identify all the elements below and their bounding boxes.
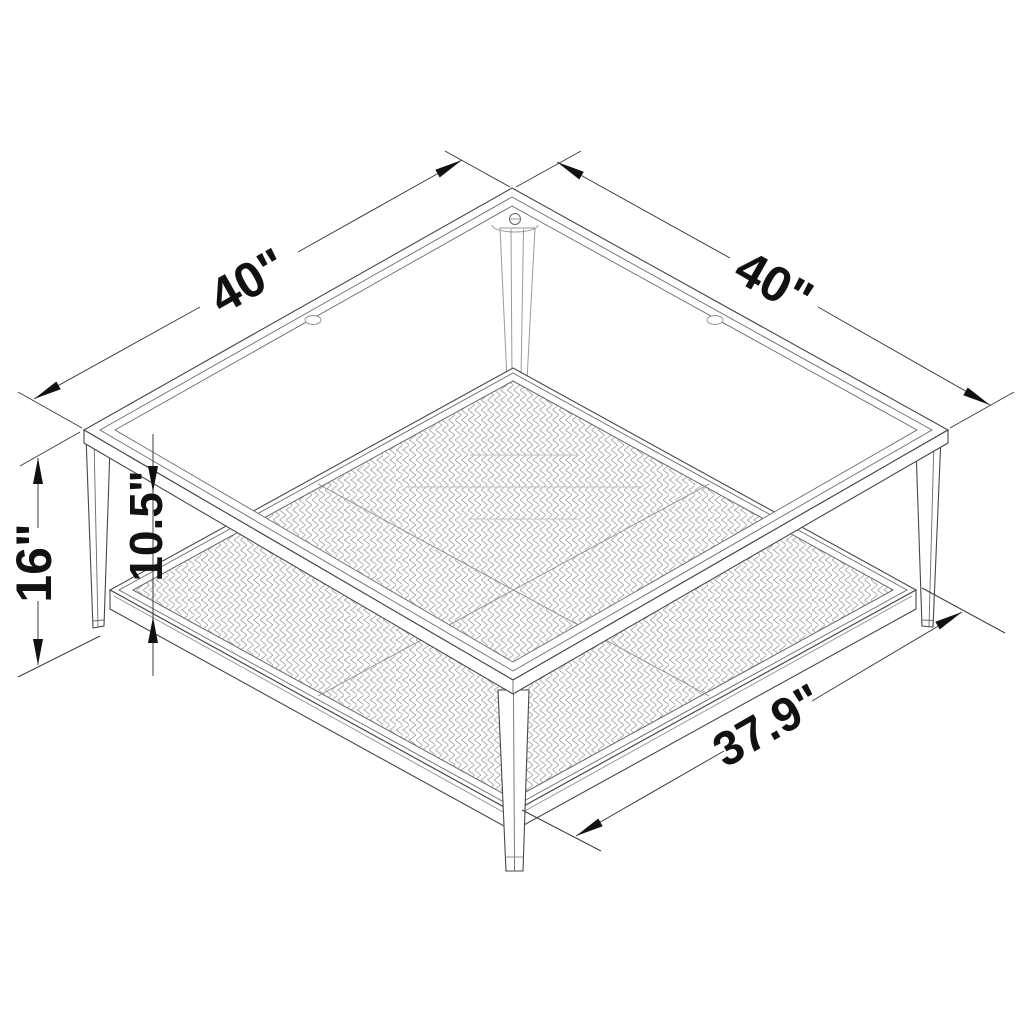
dimension-top-right-depth: 40": [516, 151, 1014, 428]
dim-arrowhead: [33, 458, 43, 484]
coffee-table-dimension-diagram: 40" 40" 16" 10.5" 37.9": [0, 0, 1024, 1024]
extension-line: [20, 432, 80, 466]
front-leg: [498, 690, 529, 871]
extension-line: [18, 636, 100, 677]
extension-line: [18, 392, 82, 428]
dim-arrowhead: [963, 388, 990, 406]
dimension-overall-height: 16": [6, 432, 100, 677]
dim-label-height: 16": [6, 523, 62, 602]
back-leg: [500, 228, 535, 380]
diagram-canvas: 40" 40" 16" 10.5" 37.9": [0, 0, 1024, 1024]
dim-label-top-right: 40": [726, 239, 823, 327]
frame-clip: [305, 316, 321, 325]
extension-line: [950, 392, 1014, 428]
frame-clip: [707, 316, 723, 325]
dim-arrowhead: [576, 819, 603, 837]
dimension-line: [818, 307, 990, 405]
left-leg: [86, 436, 110, 628]
dim-arrowhead: [435, 160, 462, 178]
dimension-top-left-width: 40": [18, 151, 510, 428]
dim-arrowhead: [935, 612, 962, 630]
extension-line: [445, 151, 510, 187]
dim-label-top-left: 40": [200, 237, 297, 325]
dim-label-clearance: 10.5": [120, 470, 172, 581]
dim-arrowhead: [557, 162, 584, 180]
extension-line: [922, 588, 1005, 633]
dim-arrowhead: [34, 382, 61, 400]
dim-arrowhead: [33, 639, 43, 665]
right-leg: [916, 437, 941, 627]
